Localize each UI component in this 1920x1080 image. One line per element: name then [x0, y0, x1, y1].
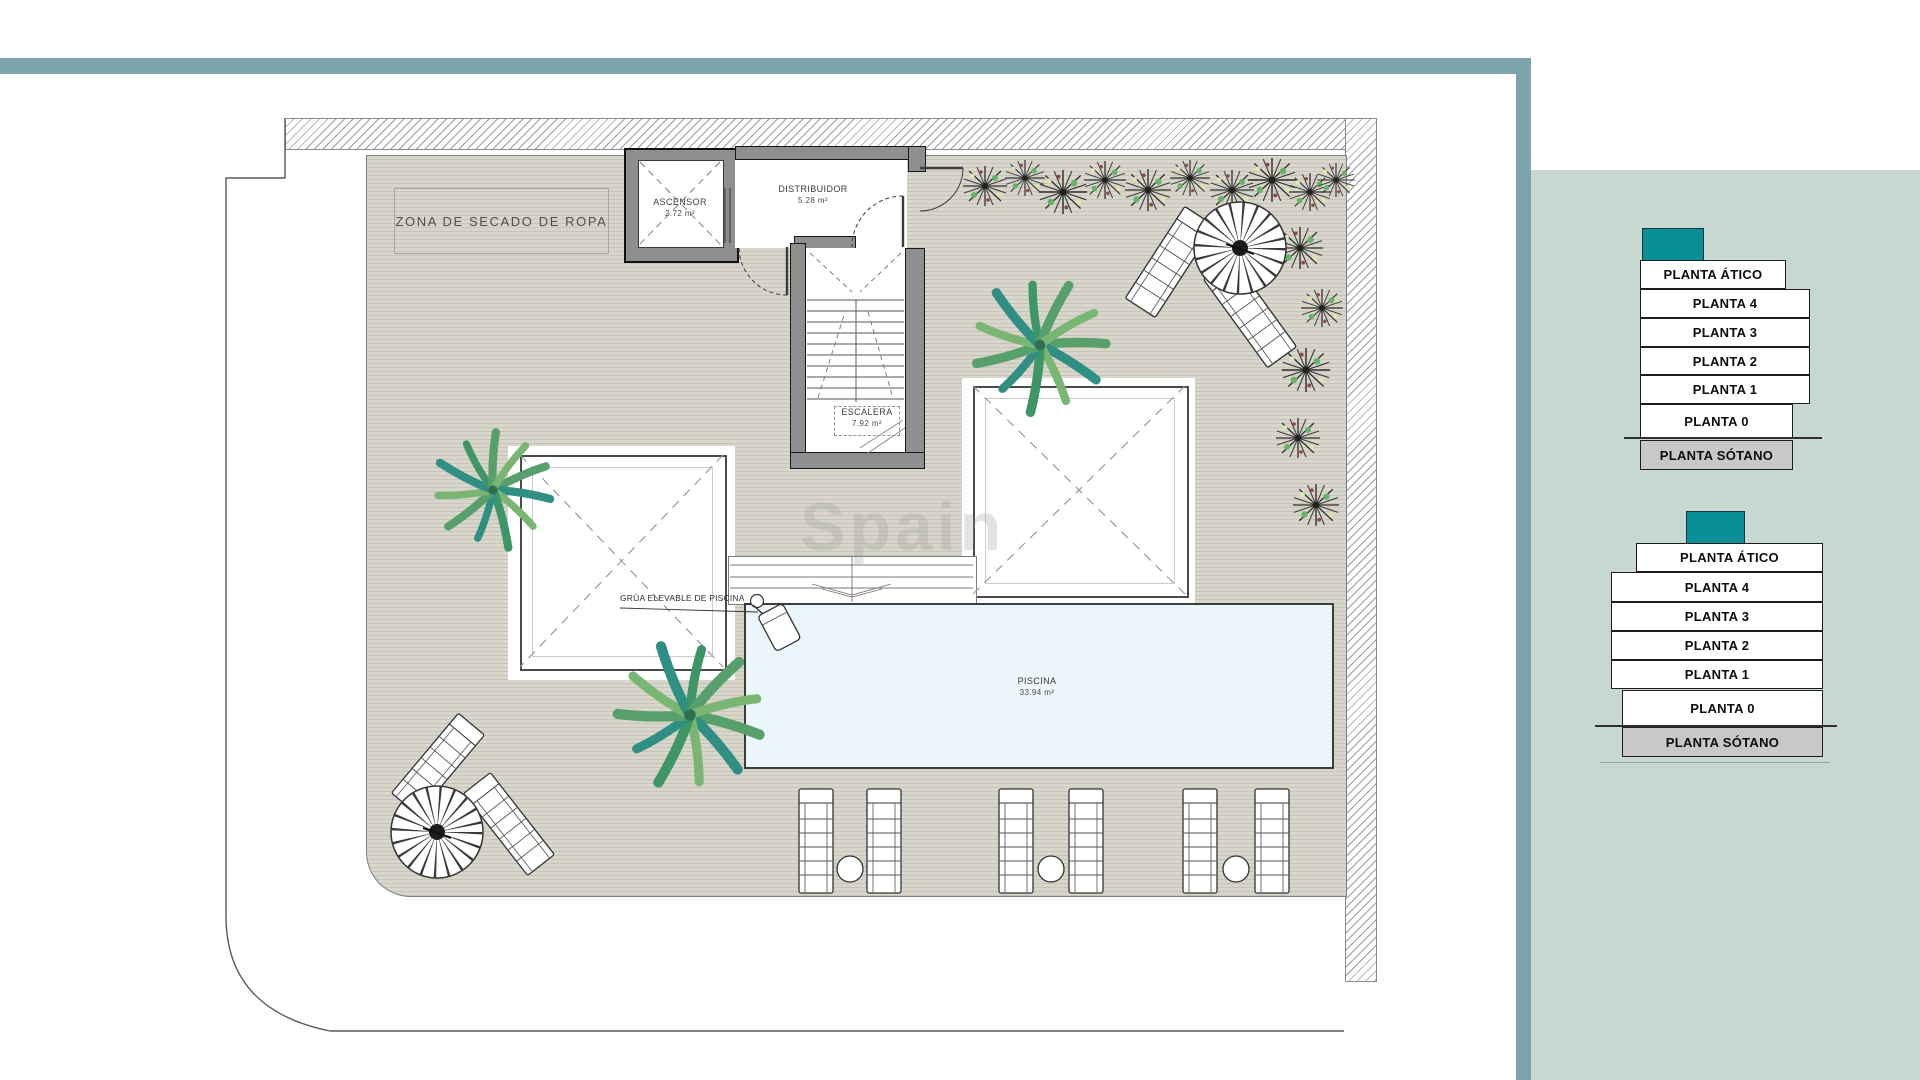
floor-button-planta-1[interactable]: PLANTA 1 — [1611, 660, 1823, 689]
ground-line-faint — [1600, 762, 1830, 763]
floor-button-planta-0[interactable]: PLANTA 0 — [1640, 404, 1793, 438]
roof-indicator — [1642, 228, 1704, 262]
ground-line — [1624, 437, 1822, 439]
floor-button-planta-1[interactable]: PLANTA 1 — [1640, 375, 1810, 404]
hall-label: DISTRIBUIDOR 5.28 m² — [758, 184, 868, 206]
floor-button-planta-atico[interactable]: PLANTA ÁTICO — [1640, 260, 1786, 289]
floor-button-planta-atico[interactable]: PLANTA ÁTICO — [1636, 543, 1823, 572]
wall — [735, 146, 910, 160]
floor-button-planta-sotano[interactable]: PLANTA SÓTANO — [1622, 727, 1823, 757]
floor-button-planta-0[interactable]: PLANTA 0 — [1622, 690, 1823, 726]
wall — [790, 243, 806, 469]
floor-button-planta-2[interactable]: PLANTA 2 — [1640, 347, 1810, 375]
floor-button-planta-4[interactable]: PLANTA 4 — [1611, 572, 1823, 602]
hatch-strip-right — [1345, 118, 1377, 982]
wall — [908, 146, 926, 172]
sheet-frame-right — [1516, 58, 1531, 1080]
sheet-frame-top — [0, 58, 1531, 74]
elevator-label: ASCENSOR 2.72 m² — [628, 197, 732, 219]
wall — [905, 248, 925, 469]
pool-label: PISCINA 33.94 m² — [997, 676, 1077, 698]
roof-indicator — [1686, 511, 1745, 545]
skylight-left-inner — [532, 467, 713, 657]
wall — [790, 452, 925, 469]
skylight-right-inner — [985, 398, 1175, 584]
stairs-label: ESCALERA 7.92 m² — [834, 406, 900, 436]
floor-button-planta-sotano[interactable]: PLANTA SÓTANO — [1640, 440, 1793, 470]
watermark: Spain — [800, 488, 1005, 566]
floor-button-planta-3[interactable]: PLANTA 3 — [1611, 602, 1823, 631]
floor-button-planta-2[interactable]: PLANTA 2 — [1611, 631, 1823, 660]
floor-button-planta-3[interactable]: PLANTA 3 — [1640, 318, 1810, 347]
pool-crane-label: GRÚA ELEVABLE DE PISCINA — [620, 593, 745, 603]
floor-button-planta-4[interactable]: PLANTA 4 — [1640, 289, 1810, 318]
drying-zone-outline: ZONA DE SECADO DE ROPA — [394, 188, 609, 254]
drying-zone-label: ZONA DE SECADO DE ROPA — [396, 214, 608, 229]
